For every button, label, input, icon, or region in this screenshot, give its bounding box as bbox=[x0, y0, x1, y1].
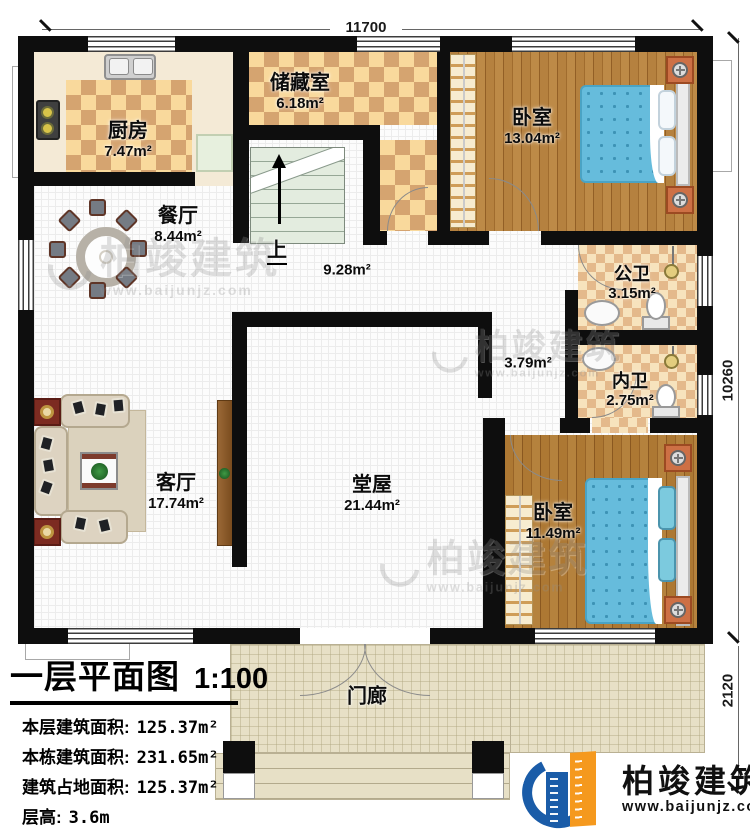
stat-line: 本层建筑面积:125.37m² bbox=[22, 713, 268, 738]
wall-exterior-bottom bbox=[193, 628, 300, 644]
logo-company-name: 柏竣建筑 bbox=[622, 763, 750, 800]
porch-terrace-divider bbox=[510, 645, 511, 752]
wall-kitchen-bottom bbox=[34, 172, 195, 186]
sofa-cushion bbox=[111, 397, 125, 413]
pillow bbox=[658, 486, 676, 530]
wall-storage-bottom bbox=[363, 231, 387, 245]
logo-building-orange bbox=[570, 751, 596, 827]
wall-bedroom-top-bottom bbox=[541, 231, 697, 245]
ensuite-door-threshold bbox=[592, 418, 648, 433]
shower-head-icon bbox=[664, 354, 679, 369]
stair-up-underline bbox=[267, 263, 287, 265]
room-label-dining: 餐厅 8.44m² bbox=[154, 205, 202, 245]
title-underline bbox=[10, 701, 238, 705]
wall-ensuite-bottom bbox=[560, 418, 590, 433]
room-label-kitchen: 厨房 7.47m² bbox=[104, 120, 152, 160]
room-label-bedroom-bottom: 卧室 11.49m² bbox=[525, 502, 580, 542]
stairs bbox=[250, 147, 345, 244]
wall-bedroom-bottom-left bbox=[483, 418, 505, 628]
wall-hall-right-return bbox=[478, 327, 492, 398]
stove-burner bbox=[41, 106, 54, 119]
room-label-ensuite-bath: 内卫 2.75m² bbox=[606, 371, 654, 409]
wall-exterior-bottom bbox=[18, 628, 68, 644]
pillow bbox=[658, 90, 676, 130]
wall-kitchen-storage bbox=[233, 52, 249, 243]
wall-ensuite-left bbox=[565, 345, 578, 418]
wall-storage-stairs bbox=[249, 125, 363, 140]
end-table bbox=[33, 518, 61, 546]
sink-icon bbox=[584, 300, 620, 326]
logo-website: www.baijunjz.com bbox=[622, 799, 750, 815]
wall-stairwell-right bbox=[363, 125, 380, 245]
stat-line: 建筑占地面积:125.37m² bbox=[22, 773, 268, 798]
dimension-right-upper: 10260 bbox=[720, 340, 737, 422]
sofa-cushion bbox=[93, 401, 108, 418]
dining-chair bbox=[130, 240, 147, 257]
stair-direction-arrow bbox=[278, 168, 281, 224]
window-bedroom-bottom bbox=[535, 628, 655, 644]
wall-exterior-bottom bbox=[430, 628, 535, 644]
wall-hall-top bbox=[247, 312, 492, 327]
plant-icon bbox=[219, 468, 230, 479]
window-public-bath bbox=[697, 256, 713, 306]
toilet-tank bbox=[652, 406, 680, 418]
sink-icon bbox=[582, 347, 616, 371]
wardrobe-bedroom-top bbox=[450, 54, 476, 228]
pillow bbox=[658, 136, 676, 176]
nightstand-lamp-icon bbox=[670, 450, 686, 466]
wall-exterior-left bbox=[18, 36, 34, 644]
company-logo: 柏竣建筑 www.baijunjz.com bbox=[520, 746, 740, 832]
window-living bbox=[68, 628, 193, 644]
dimension-right-lower: 2120 bbox=[720, 662, 737, 720]
stat-line: 层高:3.6m bbox=[22, 803, 268, 828]
stair-area-label: 9.28m² bbox=[323, 261, 371, 278]
table-lamp-icon bbox=[40, 405, 54, 419]
stair-up-label: 上 bbox=[267, 240, 287, 263]
room-label-porch: 门廊 bbox=[347, 686, 387, 709]
dimension-line-right-upper bbox=[738, 38, 739, 642]
room-label-public-bath: 公卫 3.15m² bbox=[608, 264, 656, 302]
window-dining bbox=[18, 240, 34, 310]
wall-storage-bottom bbox=[428, 231, 437, 245]
wall-exterior-bottom bbox=[655, 628, 713, 644]
sofa-bottom bbox=[60, 510, 128, 544]
sofa-cushion bbox=[41, 457, 56, 474]
wall-exterior-right bbox=[697, 36, 713, 644]
coffee-table-trim bbox=[82, 454, 116, 459]
pillow bbox=[658, 538, 676, 582]
stove-burner bbox=[41, 122, 54, 135]
kitchen-sink-basin bbox=[109, 58, 129, 75]
porch-column-base bbox=[472, 773, 504, 799]
plan-scale: 1:100 bbox=[194, 663, 268, 696]
dining-table-center bbox=[99, 250, 113, 264]
stat-line: 本栋建筑面积:231.65m² bbox=[22, 743, 268, 768]
dining-chair bbox=[89, 199, 106, 216]
room-label-living: 客厅 17.74m² bbox=[148, 472, 204, 512]
kitchen-counter bbox=[196, 134, 233, 172]
kitchen-sink-basin bbox=[133, 58, 153, 75]
wall-bedroom-top-bottom bbox=[437, 231, 489, 245]
dimension-top: 11700 bbox=[330, 19, 402, 36]
porch-column bbox=[472, 741, 504, 773]
window-storage bbox=[357, 36, 440, 52]
coffee-table-trim bbox=[82, 483, 116, 488]
floor-plan-canvas: 11700 10260 2120 bbox=[0, 0, 750, 836]
window-kitchen bbox=[88, 36, 175, 52]
wall-tv bbox=[232, 312, 247, 567]
window-bedroom-top bbox=[512, 36, 635, 52]
room-label-storage: 储藏室 6.18m² bbox=[270, 72, 330, 112]
shower-head-icon bbox=[664, 264, 679, 279]
plan-title: 一层平面图 bbox=[10, 650, 180, 698]
plant-icon bbox=[91, 463, 108, 480]
plan-title-row: 一层平面图 1:100 bbox=[10, 650, 268, 698]
window-ensuite-bath bbox=[697, 375, 713, 415]
nightstand-lamp-icon bbox=[670, 602, 686, 618]
stair-arrow-head-icon bbox=[272, 154, 286, 168]
room-label-hall: 堂屋 21.44m² bbox=[344, 474, 400, 514]
bed-headboard bbox=[676, 82, 690, 186]
title-block: 一层平面图 1:100 本层建筑面积:125.37m² 本栋建筑面积:231.6… bbox=[10, 650, 268, 833]
stair-break-line bbox=[250, 147, 345, 196]
room-label-bedroom-top: 卧室 13.04m² bbox=[504, 107, 560, 147]
nightstand-lamp-icon bbox=[672, 62, 688, 78]
table-lamp-icon bbox=[40, 525, 54, 539]
baijun-logo-icon bbox=[520, 746, 612, 832]
bed-bedroom-top bbox=[580, 85, 658, 183]
dining-chair bbox=[89, 282, 106, 299]
wall-bedroom-top-left bbox=[437, 52, 450, 245]
dining-chair bbox=[49, 241, 66, 258]
wall-ensuite-bottom bbox=[650, 418, 697, 433]
wall-public-bath-left bbox=[565, 290, 578, 330]
coffee-table bbox=[80, 452, 118, 490]
logo-building-blue bbox=[546, 772, 568, 824]
corridor-area-label: 3.79m² bbox=[504, 354, 552, 371]
nightstand-lamp-icon bbox=[672, 192, 688, 208]
end-table bbox=[33, 398, 61, 426]
wall-bath-divider bbox=[565, 330, 697, 345]
